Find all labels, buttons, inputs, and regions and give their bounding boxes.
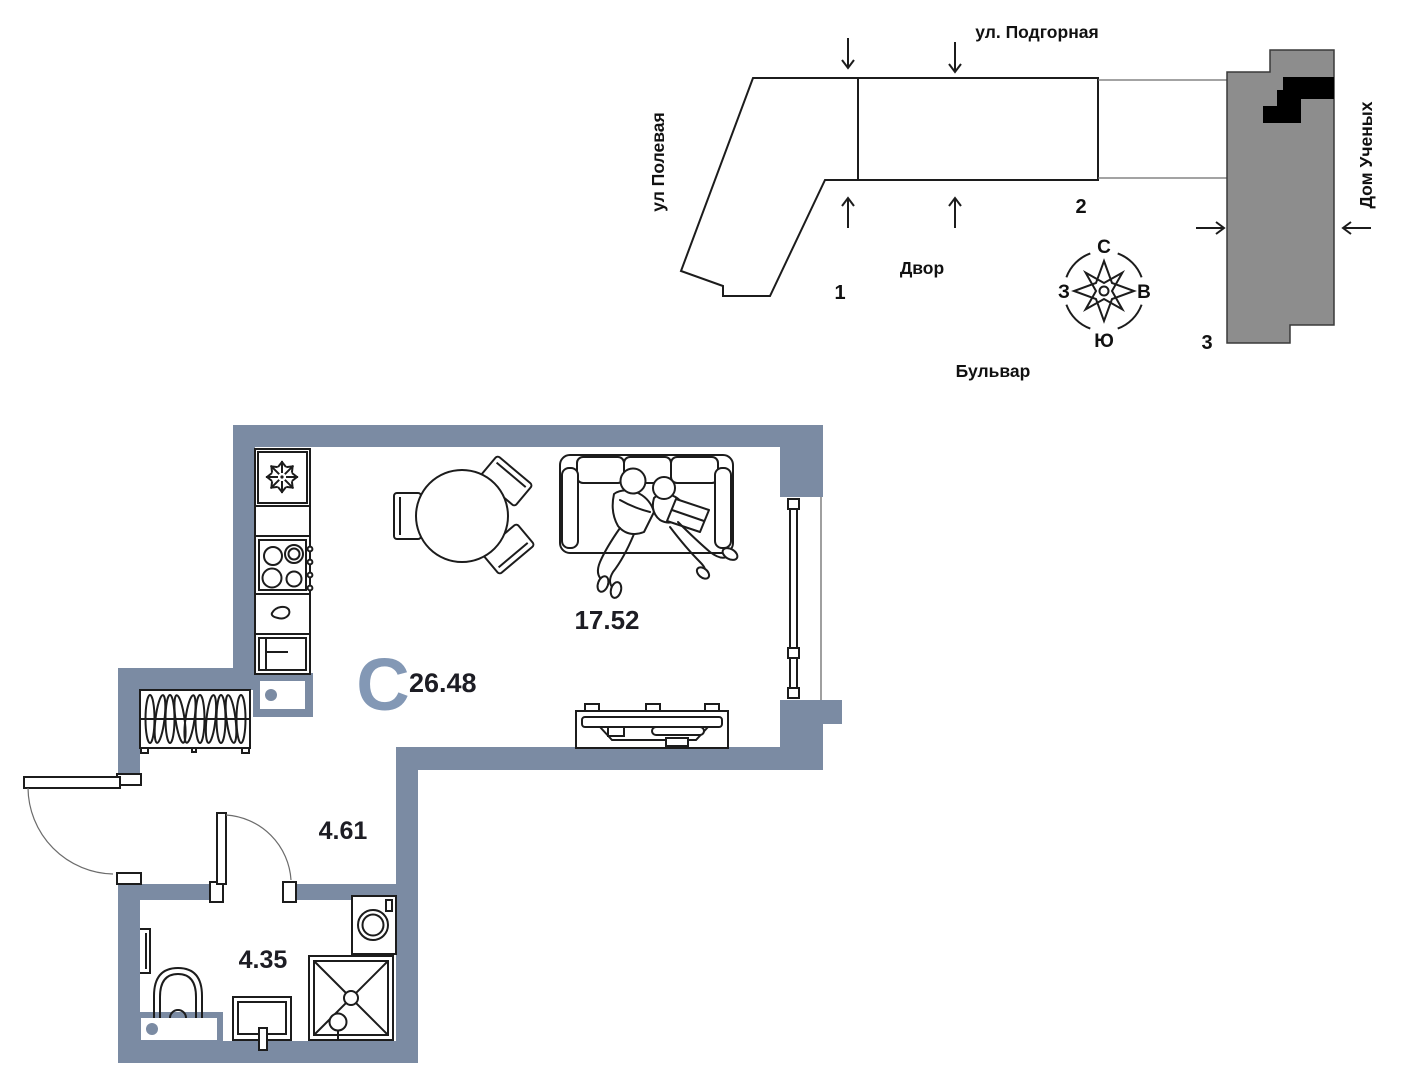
yard-label: Двор <box>900 258 944 278</box>
compass-south-label: Ю <box>1094 331 1114 352</box>
shower-head-icon <box>330 1014 347 1031</box>
sink-cabinet <box>255 594 310 634</box>
building-1-label: 1 <box>834 282 845 304</box>
vent-shaft-bathroom <box>135 1012 223 1042</box>
floor-plan: 17.52 С 26.48 4.61 4.35 <box>24 425 842 1063</box>
compass-north-label: С <box>1097 237 1111 258</box>
window-glazing <box>790 499 797 698</box>
person-head <box>653 477 675 499</box>
wall-kitchen-left <box>233 447 255 690</box>
arrow-left <box>1343 222 1371 234</box>
sofa-armrest <box>715 468 731 548</box>
site-link-lines <box>1098 80 1227 178</box>
compass-center <box>1100 287 1109 296</box>
tv-console <box>576 704 728 748</box>
arrow-down-1 <box>842 38 854 68</box>
dining-set <box>394 455 535 574</box>
building-2-label: 2 <box>1075 196 1086 218</box>
wall-hall-right <box>396 747 418 1063</box>
arrow-down-2 <box>949 42 961 72</box>
building-3-label: 3 <box>1201 332 1212 354</box>
cooktop-knob <box>308 586 313 591</box>
wardrobe <box>140 690 250 753</box>
cooktop-knob <box>308 560 313 565</box>
sofa <box>560 455 739 599</box>
entrance-door <box>24 774 141 884</box>
entrance-door-swing <box>28 788 113 874</box>
wall-living-bottom <box>396 747 823 770</box>
building-1-outline <box>681 78 858 296</box>
dining-table <box>416 470 508 562</box>
cooktop-knob <box>308 573 313 578</box>
shower <box>309 956 393 1041</box>
interior-door <box>210 813 296 902</box>
compass-rose: С Ю З В <box>1058 237 1151 352</box>
bath-area-label: 4.35 <box>239 946 288 974</box>
cooktop <box>255 536 312 594</box>
cooktop-knob <box>308 547 313 552</box>
arrow-right <box>1196 222 1224 234</box>
window-opening <box>780 497 823 700</box>
hall-area-label: 4.61 <box>319 817 368 845</box>
sofa-back-cushion <box>577 457 624 483</box>
arrow-up-2 <box>949 198 961 228</box>
arrow-up-1 <box>842 198 854 228</box>
fridge <box>255 449 310 506</box>
entrance-jamb-bottom <box>117 873 141 884</box>
vent-shaft-kitchen <box>253 673 313 717</box>
oven-cabinet <box>255 634 310 674</box>
bath-door-swing <box>226 815 291 880</box>
window-handle-bottom <box>788 688 799 698</box>
sofa-back-cushion <box>671 457 718 483</box>
sofa-armrest <box>562 468 578 548</box>
wall-bath-partition-left <box>140 884 210 900</box>
wall-left-upper <box>118 690 140 774</box>
compass-west-label: З <box>1058 282 1070 303</box>
apartment-type-letter: С <box>356 643 409 726</box>
kitchen-block <box>255 449 312 674</box>
washing-machine <box>352 896 396 954</box>
street-top-label: ул. Подгорная <box>975 22 1098 42</box>
compass-east-label: В <box>1137 282 1151 303</box>
snowflake-icon <box>266 461 298 493</box>
toilet <box>154 968 202 1018</box>
kitchen-counter <box>255 506 310 536</box>
bath-jamb-right <box>283 882 296 902</box>
wall-hall-top <box>118 668 255 690</box>
entrance-door-leaf <box>24 777 120 788</box>
bath-door-leaf <box>217 813 226 884</box>
wall-top <box>233 425 823 447</box>
boulevard-label: Бульвар <box>956 361 1031 381</box>
building-2-outline <box>858 78 1098 180</box>
street-left-label: ул Полевая <box>648 112 668 211</box>
window <box>780 497 823 700</box>
floorplan-page: С Ю З В ул. Подгорная ул Полевая Дом Уче… <box>0 0 1405 1079</box>
street-right-label: Дом Ученых <box>1356 101 1376 208</box>
plan-canvas: С Ю З В ул. Подгорная ул Полевая Дом Уче… <box>0 0 1405 1079</box>
window-handle-top <box>788 499 799 509</box>
total-area-label: 26.48 <box>409 668 477 698</box>
wall-right-upper <box>780 447 823 497</box>
tv-screen <box>582 717 722 727</box>
towel-rail <box>140 929 150 973</box>
site-plan: С Ю З В ул. Подгорная ул Полевая Дом Уче… <box>648 22 1376 381</box>
wall-right-step <box>823 700 842 724</box>
living-area-label: 17.52 <box>574 605 639 635</box>
window-handle-mid <box>788 648 799 658</box>
person-head <box>621 469 646 494</box>
